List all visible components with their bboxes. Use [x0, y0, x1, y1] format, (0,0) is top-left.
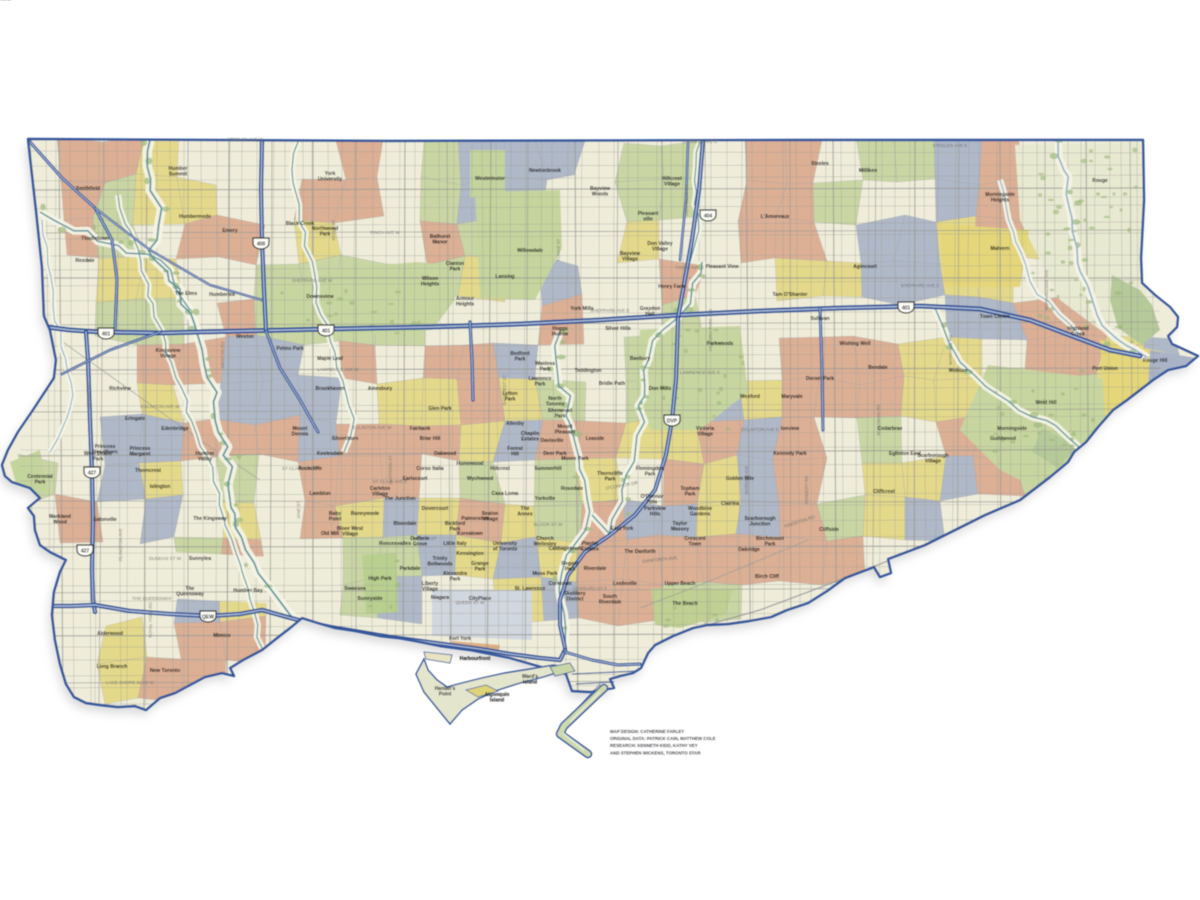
- svg-text:Upper Beach: Upper Beach: [665, 581, 696, 587]
- svg-text:DistilleryDistrict: DistilleryDistrict: [564, 591, 585, 602]
- svg-text:Silver Hills: Silver Hills: [605, 326, 631, 332]
- svg-text:FINCH AVE E: FINCH AVE E: [676, 265, 704, 270]
- svg-text:TaylorMassey: TaylorMassey: [671, 521, 689, 532]
- svg-text:Mimico: Mimico: [213, 633, 230, 639]
- svg-text:BabyPoint: BabyPoint: [329, 511, 342, 522]
- svg-text:West Hill: West Hill: [1035, 400, 1057, 406]
- svg-text:MAP DESIGN: CATHERINE FARLEY: MAP DESIGN: CATHERINE FARLEY: [610, 729, 684, 734]
- svg-text:Sunnylea: Sunnylea: [189, 556, 211, 562]
- svg-text:Briar Hill: Briar Hill: [420, 436, 441, 442]
- svg-text:Sunnyside: Sunnyside: [357, 596, 383, 602]
- svg-text:Maryvale: Maryvale: [781, 394, 803, 400]
- svg-text:Koreatown: Koreatown: [457, 531, 483, 537]
- svg-text:ChaplinEstates: ChaplinEstates: [521, 431, 539, 442]
- svg-text:Steeles: Steeles: [811, 161, 829, 167]
- svg-text:AND STEPHEN WICKENS, TORONTO S: AND STEPHEN WICKENS, TORONTO STAR: [610, 750, 701, 755]
- svg-text:The Elms: The Elms: [175, 291, 197, 297]
- svg-text:Little Italy: Little Italy: [443, 541, 467, 547]
- svg-text:Brookhaven: Brookhaven: [316, 386, 345, 392]
- svg-text:Corktown: Corktown: [548, 581, 571, 587]
- svg-text:Bloordale: Bloordale: [393, 521, 416, 527]
- svg-text:Emery: Emery: [222, 228, 238, 234]
- svg-text:PlayterEstates: PlayterEstates: [581, 541, 599, 552]
- svg-text:Oakwood: Oakwood: [434, 451, 457, 457]
- svg-text:Banbury: Banbury: [630, 356, 651, 362]
- svg-text:Lansing: Lansing: [495, 274, 514, 280]
- svg-text:Clairlea: Clairlea: [721, 501, 739, 507]
- svg-text:Casa Loma: Casa Loma: [492, 491, 519, 497]
- svg-text:Alderwood: Alderwood: [97, 631, 123, 637]
- svg-text:Harbourfront: Harbourfront: [460, 656, 491, 662]
- svg-text:Weston: Weston: [236, 334, 254, 340]
- svg-text:The Danforth: The Danforth: [624, 549, 655, 555]
- svg-text:The Beach: The Beach: [672, 601, 697, 607]
- svg-text:DufferinGrove: DufferinGrove: [410, 536, 429, 547]
- svg-text:HumberValley: HumberValley: [196, 451, 215, 462]
- svg-text:WESTON RD: WESTON RD: [220, 342, 225, 369]
- svg-text:427: 427: [88, 470, 97, 476]
- svg-text:Cliffside: Cliffside: [819, 527, 839, 533]
- svg-text:STEELES AVE W: STEELES AVE W: [227, 137, 264, 142]
- svg-text:427: 427: [81, 548, 90, 554]
- svg-text:Rockcliffe: Rockcliffe: [298, 466, 322, 472]
- svg-text:JANE ST: JANE ST: [296, 501, 301, 519]
- svg-text:LAKE SHORE BLVD W: LAKE SHORE BLVD W: [106, 680, 155, 685]
- svg-text:Downsview: Downsview: [306, 294, 333, 300]
- svg-text:Leslieville: Leslieville: [613, 581, 637, 587]
- svg-text:MARKHAM RD: MARKHAM RD: [948, 335, 953, 365]
- svg-text:NorthToronto: NorthToronto: [546, 396, 565, 407]
- svg-text:WoodbineGardens: WoodbineGardens: [688, 506, 712, 517]
- svg-text:Rouge: Rouge: [1092, 178, 1108, 184]
- svg-text:Yorkville: Yorkville: [535, 496, 556, 502]
- svg-text:ORIGINAL DATA: PATRICK CAIN, M: ORIGINAL DATA: PATRICK CAIN, MATTHEW COL…: [610, 736, 716, 741]
- svg-text:BathurstManor: BathurstManor: [430, 234, 451, 245]
- svg-text:WilsonHeights: WilsonHeights: [421, 276, 440, 287]
- svg-text:Humewood: Humewood: [457, 461, 484, 467]
- svg-text:BLOOR ST W: BLOOR ST W: [534, 522, 563, 527]
- svg-text:Westminster: Westminster: [475, 176, 505, 182]
- svg-text:Golden Mile: Golden Mile: [726, 476, 755, 482]
- svg-text:EGLINTON AVE E: EGLINTON AVE E: [741, 427, 779, 432]
- svg-text:VictoriaVillage: VictoriaVillage: [696, 426, 714, 437]
- svg-text:LAWRENCE AVE E: LAWRENCE AVE E: [680, 370, 720, 375]
- svg-text:Lambton: Lambton: [309, 491, 330, 497]
- svg-text:MountPleasant: MountPleasant: [555, 424, 576, 435]
- svg-text:Islington: Islington: [150, 484, 171, 490]
- svg-text:ISLINGTON AVE: ISLINGTON AVE: [118, 528, 123, 561]
- svg-text:St. Lawrence: St. Lawrence: [515, 586, 546, 592]
- svg-text:Corso Italia: Corso Italia: [416, 466, 443, 472]
- svg-text:Cliffcrest: Cliffcrest: [873, 489, 895, 495]
- svg-text:Amesbury: Amesbury: [368, 386, 393, 392]
- svg-text:MORNINGSIDE AVE: MORNINGSIDE AVE: [1044, 269, 1049, 310]
- svg-text:LyttonPark: LyttonPark: [502, 391, 517, 402]
- svg-text:Woburn: Woburn: [949, 368, 968, 374]
- svg-text:Parkwoods: Parkwoods: [707, 341, 734, 347]
- svg-text:Kensington: Kensington: [456, 551, 484, 557]
- svg-text:Moss Park: Moss Park: [532, 571, 557, 577]
- svg-text:Swansea: Swansea: [344, 586, 366, 592]
- svg-text:Pleasant View: Pleasant View: [705, 264, 738, 270]
- svg-text:Bendale: Bendale: [868, 365, 888, 371]
- svg-text:ROYAL YORK RD: ROYAL YORK RD: [148, 602, 153, 638]
- svg-text:404: 404: [704, 213, 713, 219]
- svg-text:Parkdale: Parkdale: [400, 566, 421, 572]
- svg-text:SHEPPARD AVE E: SHEPPARD AVE E: [590, 308, 629, 313]
- svg-text:HoggsHollow: HoggsHollow: [552, 326, 568, 337]
- svg-text:Eglinton East: Eglinton East: [889, 451, 921, 457]
- svg-text:401: 401: [102, 331, 111, 337]
- svg-text:Port Union: Port Union: [1092, 366, 1118, 372]
- svg-text:Tam O'Shanter: Tam O'Shanter: [773, 292, 808, 298]
- svg-text:KENNEDY RD: KENNEDY RD: [804, 476, 809, 505]
- svg-text:Newtonbrook: Newtonbrook: [529, 168, 561, 174]
- svg-text:Oakridge: Oakridge: [738, 547, 760, 553]
- svg-text:Davisville: Davisville: [540, 438, 563, 444]
- svg-text:Wychwood: Wychwood: [467, 476, 493, 482]
- svg-text:Milliken: Milliken: [859, 168, 877, 174]
- svg-text:BayviewWoods: BayviewWoods: [590, 186, 610, 197]
- svg-text:Henry Farm: Henry Farm: [658, 284, 686, 290]
- svg-text:LibertyVillage: LibertyVillage: [422, 581, 439, 592]
- svg-text:EGLINTON AVE W: EGLINTON AVE W: [141, 404, 181, 409]
- svg-text:East York: East York: [611, 526, 634, 532]
- svg-text:DON MILLS RD: DON MILLS RD: [684, 184, 689, 215]
- svg-text:Thistletown: Thistletown: [81, 236, 109, 242]
- svg-text:THE QUEENSWAY: THE QUEENSWAY: [132, 596, 172, 601]
- svg-text:High Park: High Park: [368, 576, 392, 582]
- svg-text:Cedarbrae: Cedarbrae: [878, 426, 903, 432]
- svg-text:HumberSummit: HumberSummit: [169, 166, 188, 177]
- svg-text:DUFFERIN ST: DUFFERIN ST: [388, 455, 393, 484]
- svg-text:Smithfield: Smithfield: [76, 186, 100, 192]
- svg-text:Old Mill: Old Mill: [321, 531, 340, 537]
- svg-text:Dorset Park: Dorset Park: [806, 376, 834, 382]
- svg-text:EGLINTON AVE W: EGLINTON AVE W: [353, 425, 393, 430]
- svg-text:Eatonville: Eatonville: [93, 517, 117, 523]
- svg-text:Richview: Richview: [109, 386, 131, 392]
- svg-text:Edenbridge: Edenbridge: [161, 426, 189, 432]
- svg-text:Rosedale: Rosedale: [561, 486, 583, 492]
- svg-text:Eringate: Eringate: [125, 416, 145, 422]
- svg-text:Kennedy Park: Kennedy Park: [773, 451, 807, 457]
- svg-text:Niagara: Niagara: [431, 595, 450, 601]
- svg-text:Birch Cliff: Birch Cliff: [755, 574, 779, 580]
- svg-text:Summerhill: Summerhill: [534, 466, 562, 472]
- svg-text:New Toronto: New Toronto: [150, 668, 180, 674]
- svg-text:Long Branch: Long Branch: [97, 664, 128, 670]
- svg-text:PrincessMargaret: PrincessMargaret: [129, 446, 150, 457]
- svg-text:Ionview: Ionview: [781, 426, 799, 432]
- svg-text:QEW: QEW: [202, 614, 214, 620]
- svg-text:Fort York: Fort York: [449, 636, 471, 642]
- svg-text:Rouge Hill: Rouge Hill: [1143, 358, 1168, 364]
- svg-text:Sullivan: Sullivan: [810, 316, 829, 322]
- svg-text:Glen Park: Glen Park: [428, 406, 452, 412]
- svg-text:SHEPPARD AVE E: SHEPPARD AVE E: [900, 283, 939, 288]
- svg-text:York Mills: York Mills: [570, 306, 593, 312]
- svg-text:STEELES AVE E: STEELES AVE E: [933, 143, 968, 148]
- svg-text:Runnymede: Runnymede: [351, 511, 380, 517]
- svg-text:FINCH AVE W: FINCH AVE W: [370, 230, 400, 235]
- svg-text:Allenby: Allenby: [506, 421, 524, 427]
- svg-text:Sullivan2: Sullivan2: [0, 0, 11, 2]
- svg-text:Roncesvalles: Roncesvalles: [379, 541, 411, 547]
- svg-text:Cabbagetown: Cabbagetown: [549, 546, 582, 552]
- svg-text:The Junction: The Junction: [384, 496, 415, 502]
- svg-text:MountDennis: MountDennis: [292, 426, 309, 437]
- svg-text:Universityof Toronto: Universityof Toronto: [493, 541, 518, 552]
- svg-text:Keelesdale: Keelesdale: [317, 451, 343, 457]
- svg-text:STEELES AVE E: STEELES AVE E: [683, 139, 718, 144]
- svg-text:Maple Leaf: Maple Leaf: [317, 356, 343, 362]
- svg-text:Moore Park: Moore Park: [561, 456, 588, 462]
- svg-text:Rexdale: Rexdale: [75, 258, 94, 264]
- svg-text:CityPlace: CityPlace: [469, 596, 492, 602]
- svg-text:DVP: DVP: [667, 418, 678, 424]
- svg-text:ArmourHeights: ArmourHeights: [456, 296, 475, 307]
- svg-text:The Kingsway: The Kingsway: [193, 516, 227, 522]
- svg-text:SHEPPARD AVE W: SHEPPARD AVE W: [292, 278, 333, 283]
- svg-text:Ward'sIsland: Ward'sIsland: [522, 674, 539, 685]
- svg-text:Humberlea: Humberlea: [209, 292, 235, 298]
- svg-text:Don Mills: Don Mills: [649, 386, 671, 392]
- svg-text:Agincourt: Agincourt: [853, 264, 877, 270]
- svg-text:Silverthorn: Silverthorn: [332, 436, 358, 442]
- svg-text:Bridle Path: Bridle Path: [599, 381, 625, 387]
- svg-text:Leaside: Leaside: [586, 436, 605, 442]
- svg-text:L'Amoreaux: L'Amoreaux: [761, 214, 790, 220]
- svg-text:Willowdale: Willowdale: [517, 248, 543, 254]
- svg-text:Pelmo Park: Pelmo Park: [276, 346, 303, 352]
- svg-text:Humber Bay: Humber Bay: [233, 588, 263, 594]
- svg-text:Black Creek: Black Creek: [286, 221, 315, 227]
- svg-text:RESEARCH: KENNETH KIDD, KATHY: RESEARCH: KENNETH KIDD, KATHY VEY: [610, 743, 698, 748]
- svg-text:YONGE ST: YONGE ST: [556, 238, 561, 261]
- svg-text:401: 401: [902, 305, 911, 311]
- svg-text:Hillcrest: Hillcrest: [490, 466, 510, 472]
- svg-text:CarletonVillage: CarletonVillage: [370, 486, 390, 497]
- svg-text:401: 401: [322, 328, 331, 334]
- svg-text:DUNDAS ST W: DUNDAS ST W: [149, 556, 182, 561]
- svg-text:HillcrestVillage: HillcrestVillage: [662, 176, 682, 187]
- svg-text:Guildwood: Guildwood: [990, 436, 1016, 442]
- svg-text:Wishing Well: Wishing Well: [840, 341, 872, 347]
- svg-text:Dovercourt: Dovercourt: [422, 506, 449, 512]
- svg-text:Earlscourt: Earlscourt: [403, 476, 428, 482]
- svg-text:Thorncrest: Thorncrest: [135, 468, 161, 474]
- svg-text:Wexford: Wexford: [740, 394, 760, 400]
- svg-text:400: 400: [257, 241, 266, 247]
- svg-text:Fairbank: Fairbank: [410, 426, 431, 432]
- svg-text:BayviewVillage: BayviewVillage: [620, 251, 640, 262]
- svg-text:LAWRENCE AVE W: LAWRENCE AVE W: [317, 367, 359, 372]
- svg-text:Humbermede: Humbermede: [179, 214, 211, 220]
- svg-text:Malvern: Malvern: [991, 246, 1010, 252]
- svg-text:SeatonVillage: SeatonVillage: [482, 511, 499, 522]
- svg-text:KIPLING AVE: KIPLING AVE: [86, 382, 91, 409]
- svg-text:Town Centre: Town Centre: [980, 314, 1010, 320]
- svg-text:Riverdale: Riverdale: [584, 566, 607, 572]
- svg-text:Morningside: Morningside: [997, 426, 1027, 432]
- svg-text:Teddington: Teddington: [575, 368, 602, 374]
